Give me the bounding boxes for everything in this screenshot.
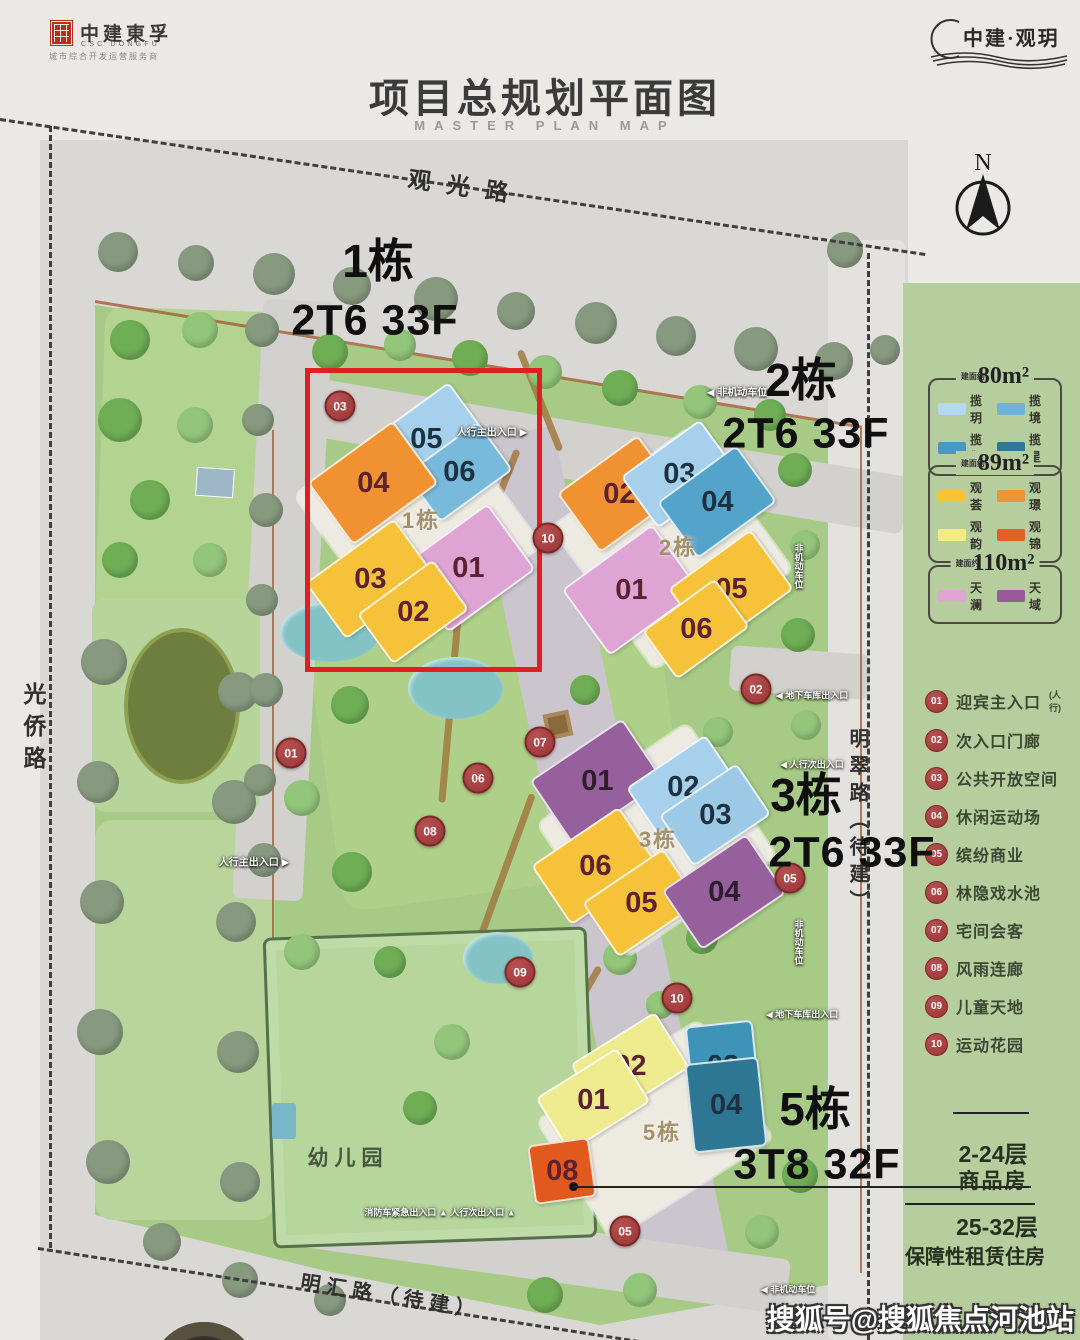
tree — [98, 232, 138, 272]
legend-numbered-item-01: 01迎宾主入口(人行) — [925, 688, 1065, 714]
cluster-1-spec-label: 2T6 33F — [291, 297, 458, 346]
tree — [827, 232, 863, 268]
map-annotation: ◀ 地下车库出入口 — [776, 689, 848, 702]
legend-number-label: 迎宾主入口 — [956, 689, 1041, 713]
legend-number-label: 宅间会客 — [956, 918, 1024, 942]
legend-number-circle: 06 — [925, 881, 948, 904]
tree — [249, 673, 283, 707]
tree — [244, 764, 276, 796]
legend-numbered-item-10: 10运动花园 — [925, 1032, 1065, 1056]
page-subtitle: MASTER PLAN MAP — [330, 118, 760, 133]
cluster-5-spec-label: 3T8 32F — [733, 1141, 900, 1190]
legend-area-prefix: 建面约 — [961, 373, 978, 381]
legend-label: 揽境 — [1029, 392, 1052, 426]
watermark: 搜狐号@搜狐焦点河池站 — [767, 1298, 1074, 1338]
floor-note-top-line — [953, 1112, 1029, 1114]
tree — [220, 1162, 260, 1202]
page-title: 项目总规划平面图 — [330, 66, 760, 124]
tree — [602, 370, 638, 406]
unit-number: 01 — [577, 1084, 609, 1117]
legend-swatch — [938, 590, 966, 602]
map-annotation: 人行主出入口 ▶ — [219, 854, 289, 869]
legend-area-title: 建面约110m² — [951, 551, 1040, 575]
legend-number-circle: 01 — [925, 690, 948, 713]
building-3-name: 3栋 — [639, 822, 677, 854]
legend-number-circle: 08 — [925, 957, 948, 980]
map-annotation: 非机动车位 — [793, 920, 806, 965]
unit-number: 01 — [581, 765, 613, 798]
tree — [77, 1009, 123, 1055]
cluster-2-big-label: 2栋 — [765, 344, 837, 410]
map-annotation: 人行主出入口 ▶ — [457, 424, 527, 439]
map-annotation: 消防车紧急出入口 ▲ 人行次出入口 ▲ — [364, 1206, 515, 1219]
legend-number-label: 风雨连廊 — [956, 956, 1024, 980]
small-pool — [272, 1103, 296, 1139]
floor-note-type-1: 商品房 — [959, 1165, 1028, 1195]
tree — [781, 618, 815, 652]
tree — [102, 542, 138, 578]
tree — [434, 1024, 470, 1060]
legend-numbered-item-09: 09儿童天地 — [925, 994, 1065, 1018]
tree — [575, 302, 617, 344]
legend-numbered-item-06: 06林隐戏水池 — [925, 880, 1065, 904]
legend-label: 天域 — [1029, 579, 1052, 613]
tree — [331, 686, 369, 724]
legend-area-title: 建面约89m² — [956, 451, 1034, 475]
tree — [870, 335, 900, 365]
unit-number: 06 — [579, 850, 611, 883]
legend-number-label: 休闲运动场 — [956, 804, 1041, 828]
legend-swatch — [938, 529, 966, 541]
legend-number-label: 林隐戏水池 — [956, 880, 1041, 904]
project-logo-text: 中建·观玥 — [963, 22, 1060, 51]
unit-number: 06 — [680, 613, 712, 646]
project-logo: 中建·观玥 — [925, 12, 1075, 75]
map-marker-02: 02 — [741, 674, 772, 705]
floor-note-range-1: 2-24层 — [958, 1135, 1027, 1169]
map-annotation: ◀ 地下车库出入口 — [766, 1008, 838, 1021]
legend-area-title: 建面约80m² — [956, 364, 1034, 388]
legend-swatch — [938, 403, 966, 415]
west-park-lawn-oval — [124, 628, 240, 784]
legend-item-观锦: 观锦 — [997, 518, 1052, 552]
tree — [656, 316, 696, 356]
cluster-1-big-label: 1栋 — [342, 225, 414, 291]
legend-area-group-110m²: 建面约110m²天澜天域 — [928, 565, 1062, 624]
legend-number-circle: 09 — [925, 995, 948, 1018]
legend-label: 揽玥 — [970, 392, 993, 426]
legend-label: 观荟 — [970, 479, 993, 513]
tree — [745, 1215, 779, 1249]
tree — [403, 1091, 437, 1125]
legend-item-观璟: 观璟 — [997, 479, 1052, 513]
legend-numbered-item-08: 08风雨连廊 — [925, 956, 1065, 980]
legend-item-揽玥: 揽玥 — [938, 392, 993, 426]
legend-label: 观锦 — [1029, 518, 1052, 552]
legend-item-观荟: 观荟 — [938, 479, 993, 513]
tree — [177, 407, 213, 443]
tree — [86, 1140, 130, 1184]
building-5-unit-04: 04 — [684, 1056, 767, 1153]
legend-swatch — [997, 403, 1025, 415]
tree — [570, 675, 600, 705]
tree — [81, 639, 127, 685]
tree — [242, 404, 274, 436]
legend-numbered-item-02: 02次入口门廊 — [925, 728, 1065, 752]
cluster-3-big-label: 3栋 — [770, 759, 842, 825]
cluster-2-spec-label: 2T6 33F — [722, 410, 889, 459]
floor-note-separator-line — [905, 1203, 1035, 1205]
tree — [253, 253, 295, 295]
csc-dongfu-seal-logo — [50, 20, 73, 46]
tree — [249, 493, 283, 527]
map-marker-07: 07 — [525, 727, 556, 758]
map-marker-06: 06 — [463, 763, 494, 794]
unit-number: 01 — [615, 574, 647, 607]
cluster-5-big-label: 5栋 — [779, 1073, 851, 1139]
tree — [80, 880, 124, 924]
tree — [246, 584, 278, 616]
tree — [217, 1031, 259, 1073]
legend-numbered-item-03: 03公共开放空间 — [925, 766, 1065, 790]
legend-number-circle: 07 — [925, 919, 948, 942]
legend-number-label: 运动花园 — [956, 1032, 1024, 1056]
map-annotation: ◀ 非机动车位 — [761, 1283, 815, 1296]
legend-item-揽境: 揽境 — [997, 392, 1052, 426]
tree — [216, 902, 256, 942]
map-marker-05: 05 — [610, 1216, 641, 1247]
legend-number-circle: 04 — [925, 805, 948, 828]
tree — [178, 245, 214, 281]
tree — [193, 543, 227, 577]
floor-note-range-2: 25-32层 — [956, 1208, 1038, 1242]
legend-label: 天澜 — [970, 579, 993, 613]
legend-number-label: 公共开放空间 — [956, 766, 1058, 790]
legend-label: 观璟 — [1029, 479, 1052, 513]
legend-item-天澜: 天澜 — [938, 579, 993, 613]
legend-label: 观韵 — [970, 518, 993, 552]
tree — [497, 292, 535, 330]
tree — [791, 710, 821, 740]
tree — [284, 934, 320, 970]
tree — [284, 780, 320, 816]
legend-number-label: 儿童天地 — [956, 994, 1024, 1018]
unit-number: 04 — [708, 876, 740, 909]
legend-area-prefix: 建面约 — [961, 460, 978, 468]
tree — [130, 480, 170, 520]
map-marker-09: 09 — [505, 957, 536, 988]
legend-swatch — [938, 490, 966, 502]
map-marker-10: 10 — [662, 983, 693, 1014]
tree — [527, 1277, 563, 1313]
legend-item-观韵: 观韵 — [938, 518, 993, 552]
legend-area-prefix: 建面约 — [956, 560, 973, 568]
unit-number: 04 — [710, 1089, 742, 1122]
unit-number: 05 — [625, 887, 657, 920]
tree — [110, 320, 150, 360]
building-2-name: 2栋 — [659, 530, 697, 562]
legend-item-天域: 天域 — [997, 579, 1052, 613]
north-label: N — [974, 150, 991, 176]
legend-number-circle: 02 — [925, 729, 948, 752]
master-plan-poster: 中建東孚 CSC DONGFU 城市综合开发运营服务商 项目总规划平面图 MAS… — [0, 0, 1080, 1340]
unit-number: 03 — [699, 799, 731, 832]
legend-area-group-89m²: 建面约89m²观荟观璟观韵观锦 — [928, 465, 1062, 563]
map-marker-08: 08 — [415, 816, 446, 847]
legend-numbered-item-07: 07宅间会客 — [925, 918, 1065, 942]
tree — [77, 761, 119, 803]
map-marker-03: 03 — [325, 391, 356, 422]
kindergarten-label: 幼儿园 — [308, 1142, 389, 1172]
map-annotation: 非机动车位 — [793, 544, 806, 589]
north-arrow: N — [950, 146, 1016, 251]
legend-numbered-item-04: 04休闲运动场 — [925, 804, 1065, 828]
legend-number-label: 缤纷商业 — [956, 842, 1024, 866]
building-5-name: 5栋 — [643, 1115, 681, 1147]
sports-court — [195, 467, 235, 499]
tree — [245, 313, 279, 347]
legend-number-label: 次入口门廊 — [956, 728, 1041, 752]
legend-swatch — [997, 490, 1025, 502]
tree — [143, 1223, 181, 1261]
legend-swatch — [997, 529, 1025, 541]
tree — [374, 946, 406, 978]
legend-number-note: (人行) — [1049, 688, 1065, 714]
tree — [182, 312, 218, 348]
brand-name-en: CSC DONGFU — [81, 41, 160, 48]
map-marker-10: 10 — [533, 523, 564, 554]
tree — [98, 398, 142, 442]
map-annotation: ◀ 非机动车位 — [707, 384, 767, 399]
brand-tagline: 城市综合开发运营服务商 — [49, 51, 159, 62]
unit-number: 04 — [701, 486, 733, 519]
legend-number-circle: 10 — [925, 1033, 948, 1056]
floor-note-type-2: 保障性租赁住房 — [905, 1241, 1045, 1270]
tree — [332, 852, 372, 892]
road-label-guangqiao: 光侨路 — [16, 682, 50, 778]
tree — [623, 1273, 657, 1307]
legend-numbered-item-05: 05缤纷商业 — [925, 842, 1065, 866]
map-marker-01: 01 — [276, 738, 307, 769]
legend-number-circle: 03 — [925, 767, 948, 790]
legend-swatch — [997, 590, 1025, 602]
building-5-unit-08: 08 — [527, 1137, 597, 1205]
cluster-3-spec-label: 2T6 33F — [768, 829, 935, 878]
